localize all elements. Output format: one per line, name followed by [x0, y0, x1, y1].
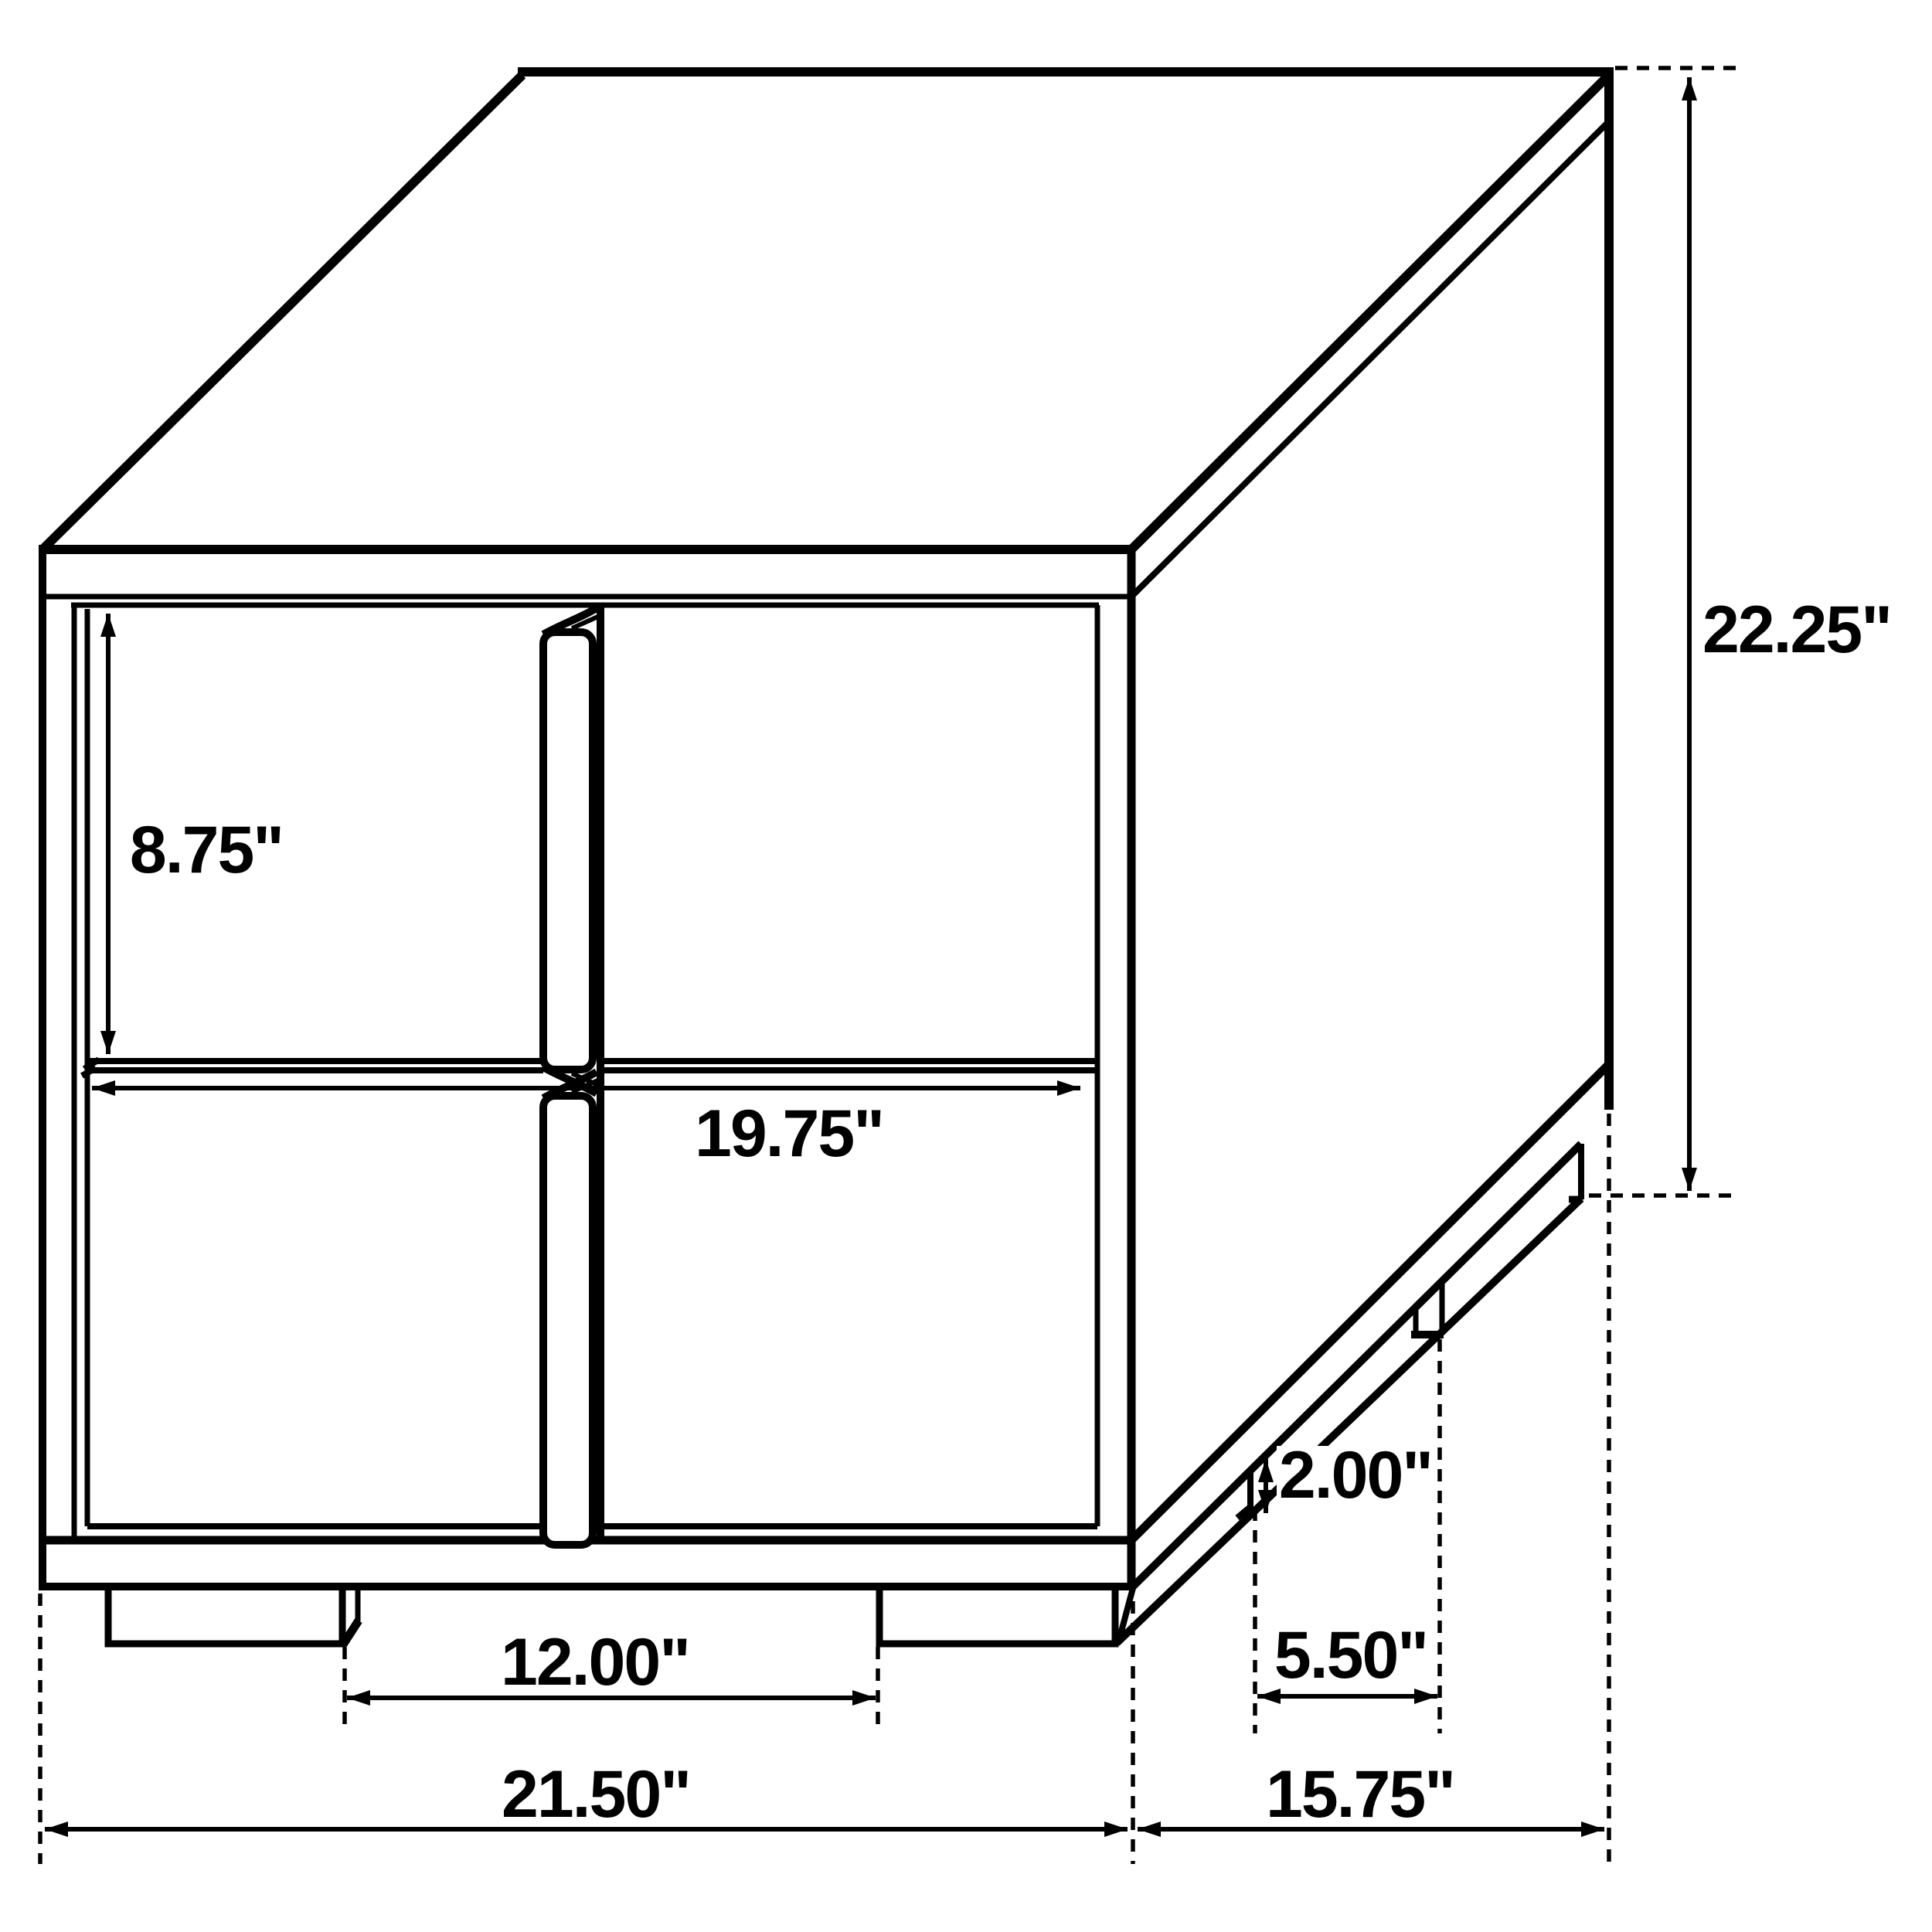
svg-text:21.50": 21.50"	[502, 1757, 690, 1832]
svg-text:5.50": 5.50"	[1274, 1618, 1427, 1692]
svg-text:8.75": 8.75"	[130, 813, 283, 887]
svg-text:19.75": 19.75"	[695, 1097, 883, 1171]
svg-text:22.25": 22.25"	[1702, 593, 1891, 667]
svg-text:15.75": 15.75"	[1266, 1757, 1454, 1832]
svg-text:12.00": 12.00"	[501, 1625, 689, 1699]
svg-text:2.00": 2.00"	[1279, 1438, 1432, 1512]
